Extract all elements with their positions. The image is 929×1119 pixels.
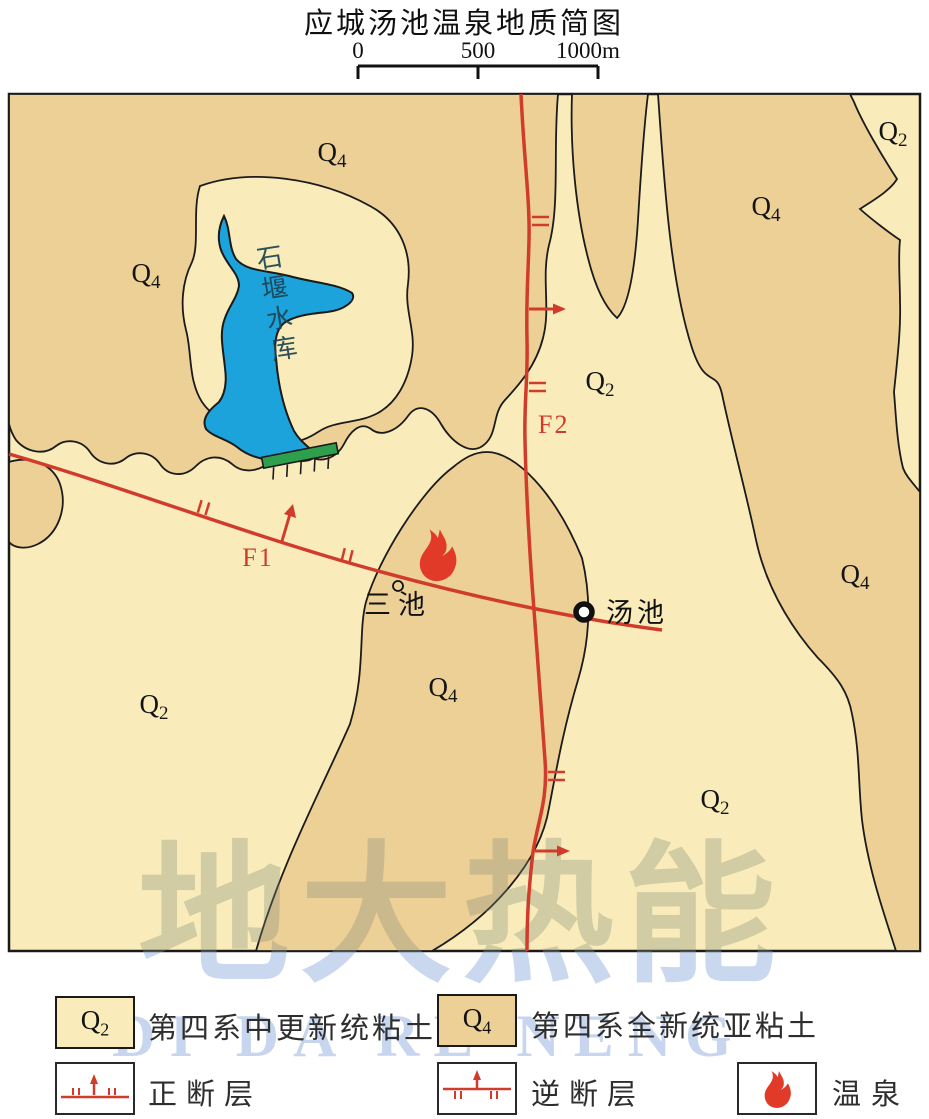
normal-fault-symbol bbox=[57, 1064, 133, 1113]
legend-hot-spring-box bbox=[737, 1062, 817, 1115]
fault-f1-label: F1 bbox=[242, 543, 273, 572]
scale-bar-ticks bbox=[358, 66, 598, 79]
legend-q4-label: 第四系全新统亚粘土 bbox=[531, 1003, 819, 1045]
legend-q2-box: Q2 bbox=[55, 996, 135, 1049]
legend-normal-fault-box bbox=[55, 1062, 135, 1115]
legend-hot-spring-label: 温泉 bbox=[832, 1071, 910, 1113]
scale-label-500: 500 bbox=[461, 38, 496, 63]
legend-reverse-fault-label: 逆断层 bbox=[531, 1071, 645, 1113]
sanchi-label: 三池 bbox=[364, 590, 432, 620]
scale-label-0: 0 bbox=[352, 38, 364, 63]
page-title: 应城汤池温泉地质简图 bbox=[304, 7, 624, 40]
legend-reverse-fault-box bbox=[437, 1062, 517, 1115]
hot-spring-symbol bbox=[739, 1064, 815, 1113]
legend-q2-label: 第四系中更新统粘土 bbox=[148, 1005, 436, 1047]
map-canvas: 应城汤池温泉地质简图 0 500 1000m 石堰水库 地大热能 bbox=[0, 0, 929, 1119]
legend-q2-symbol: Q2 bbox=[81, 1005, 110, 1040]
reverse-fault-symbol bbox=[439, 1064, 515, 1113]
geological-map-page: 应城汤池温泉地质简图 0 500 1000m 石堰水库 地大热能 bbox=[0, 0, 929, 1119]
legend-normal-fault-label: 正断层 bbox=[148, 1071, 262, 1113]
fault-f2-label: F2 bbox=[538, 410, 569, 439]
scale-label-1000m: 1000m bbox=[556, 38, 620, 63]
legend-q4-symbol: Q4 bbox=[463, 1003, 492, 1038]
tangchi-marker bbox=[576, 604, 592, 620]
scale-bar bbox=[358, 66, 598, 79]
legend-q4-box: Q4 bbox=[437, 994, 517, 1047]
tangchi-label: 汤池 bbox=[606, 598, 668, 628]
